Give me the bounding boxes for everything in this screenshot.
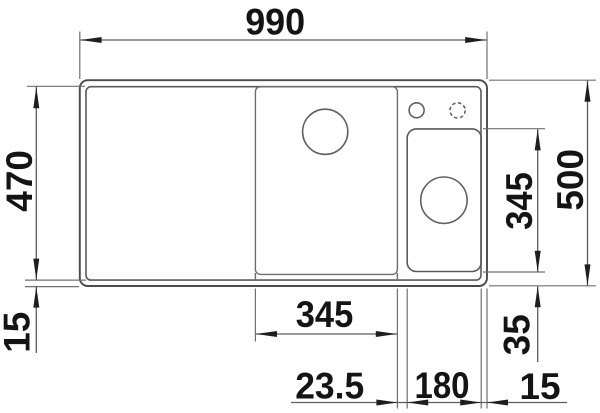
svg-text:990: 990 bbox=[245, 2, 305, 43]
svg-text:470: 470 bbox=[0, 150, 40, 212]
svg-text:180: 180 bbox=[415, 365, 470, 406]
svg-text:500: 500 bbox=[550, 149, 591, 211]
svg-text:345: 345 bbox=[499, 172, 540, 230]
svg-text:15: 15 bbox=[0, 312, 38, 353]
svg-text:23.5: 23.5 bbox=[295, 366, 364, 407]
svg-text:345: 345 bbox=[296, 294, 354, 335]
svg-text:35: 35 bbox=[497, 314, 538, 355]
svg-text:15: 15 bbox=[519, 366, 560, 407]
